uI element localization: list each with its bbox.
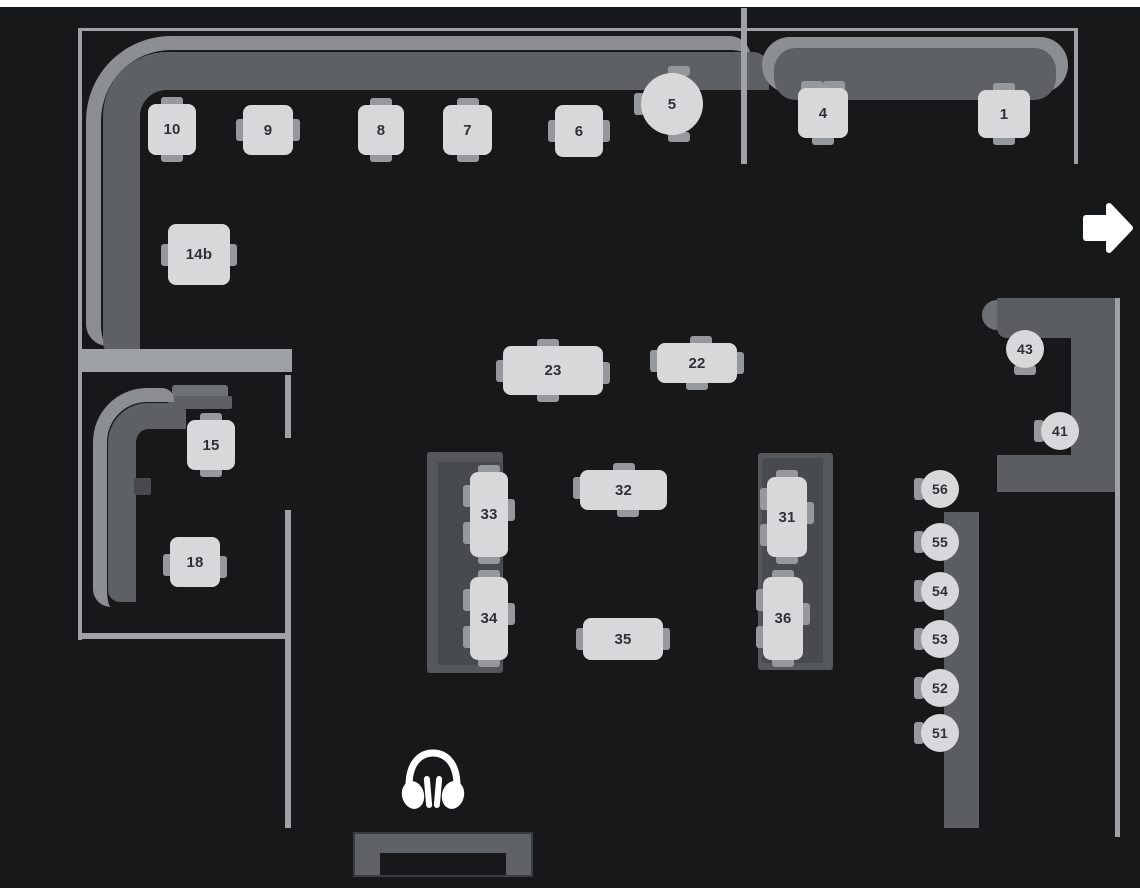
table-label: 4 <box>798 88 848 138</box>
stool-52[interactable]: 52 <box>921 669 959 707</box>
table-label: 18 <box>170 537 220 587</box>
table-label: 32 <box>580 470 667 510</box>
wall-room2-right <box>1074 28 1078 164</box>
table-label: 22 <box>657 343 737 383</box>
table-label: 10 <box>148 104 196 155</box>
table-label: 6 <box>555 105 603 157</box>
table-35[interactable]: 35 <box>583 618 663 660</box>
stool-51[interactable]: 51 <box>921 714 959 752</box>
table-label: 5 <box>641 73 703 135</box>
table-9[interactable]: 9 <box>243 105 293 155</box>
table-31[interactable]: 31 <box>767 477 807 557</box>
table-label: 51 <box>921 714 959 752</box>
table-label: 56 <box>921 470 959 508</box>
table-8[interactable]: 8 <box>358 105 404 155</box>
table-label: 1 <box>978 90 1030 138</box>
wall-annex-right-lower <box>285 510 291 828</box>
table-label: 9 <box>243 105 293 155</box>
table-label: 52 <box>921 669 959 707</box>
table-18[interactable]: 18 <box>170 537 220 587</box>
stool-54[interactable]: 54 <box>921 572 959 610</box>
table-15[interactable]: 15 <box>187 420 235 470</box>
side-table <box>134 478 151 495</box>
wall-divider <box>741 8 747 164</box>
arrow-right-icon <box>1082 199 1136 257</box>
table-label: 8 <box>358 105 404 155</box>
headphones-icon <box>401 748 465 814</box>
wall-annex-right-upper <box>285 375 291 438</box>
table-10[interactable]: 10 <box>148 104 196 155</box>
wall-top <box>78 28 1078 31</box>
wall-left <box>78 28 82 640</box>
stool-53[interactable]: 53 <box>921 620 959 658</box>
wall-annex-bottom <box>78 633 291 639</box>
dj-booth <box>353 832 533 877</box>
stool-56[interactable]: 56 <box>921 470 959 508</box>
table-label: 34 <box>470 577 508 660</box>
table-label: 7 <box>443 105 492 155</box>
table-7[interactable]: 7 <box>443 105 492 155</box>
table-label: 14b <box>168 224 230 285</box>
counter-c-bottom <box>997 455 1115 492</box>
table-5[interactable]: 5 <box>641 73 703 135</box>
wall-partition <box>78 349 292 372</box>
stool-41[interactable]: 41 <box>1041 412 1079 450</box>
table-label: 15 <box>187 420 235 470</box>
table-22[interactable]: 22 <box>657 343 737 383</box>
table-4[interactable]: 4 <box>798 88 848 138</box>
table-23[interactable]: 23 <box>503 346 603 395</box>
stool-43[interactable]: 43 <box>1006 330 1044 368</box>
table-label: 54 <box>921 572 959 610</box>
table-label: 33 <box>470 472 508 557</box>
table-34[interactable]: 34 <box>470 577 508 660</box>
table-32[interactable]: 32 <box>580 470 667 510</box>
table-label: 53 <box>921 620 959 658</box>
table-label: 55 <box>921 523 959 561</box>
table-label: 23 <box>503 346 603 395</box>
table-33[interactable]: 33 <box>470 472 508 557</box>
top-strip <box>0 0 1140 7</box>
table-label: 41 <box>1041 412 1079 450</box>
table-label: 31 <box>767 477 807 557</box>
table-36[interactable]: 36 <box>763 577 803 660</box>
table-14b[interactable]: 14b <box>168 224 230 285</box>
dj-booth-cutout <box>380 853 506 877</box>
floor-plan: 109876514b412322151832333431363543415655… <box>0 0 1140 888</box>
wall-right-edge <box>1115 298 1120 837</box>
table-1[interactable]: 1 <box>978 90 1030 138</box>
stool-55[interactable]: 55 <box>921 523 959 561</box>
table-label: 43 <box>1006 330 1044 368</box>
table-label: 35 <box>583 618 663 660</box>
table-label: 36 <box>763 577 803 660</box>
table-6[interactable]: 6 <box>555 105 603 157</box>
